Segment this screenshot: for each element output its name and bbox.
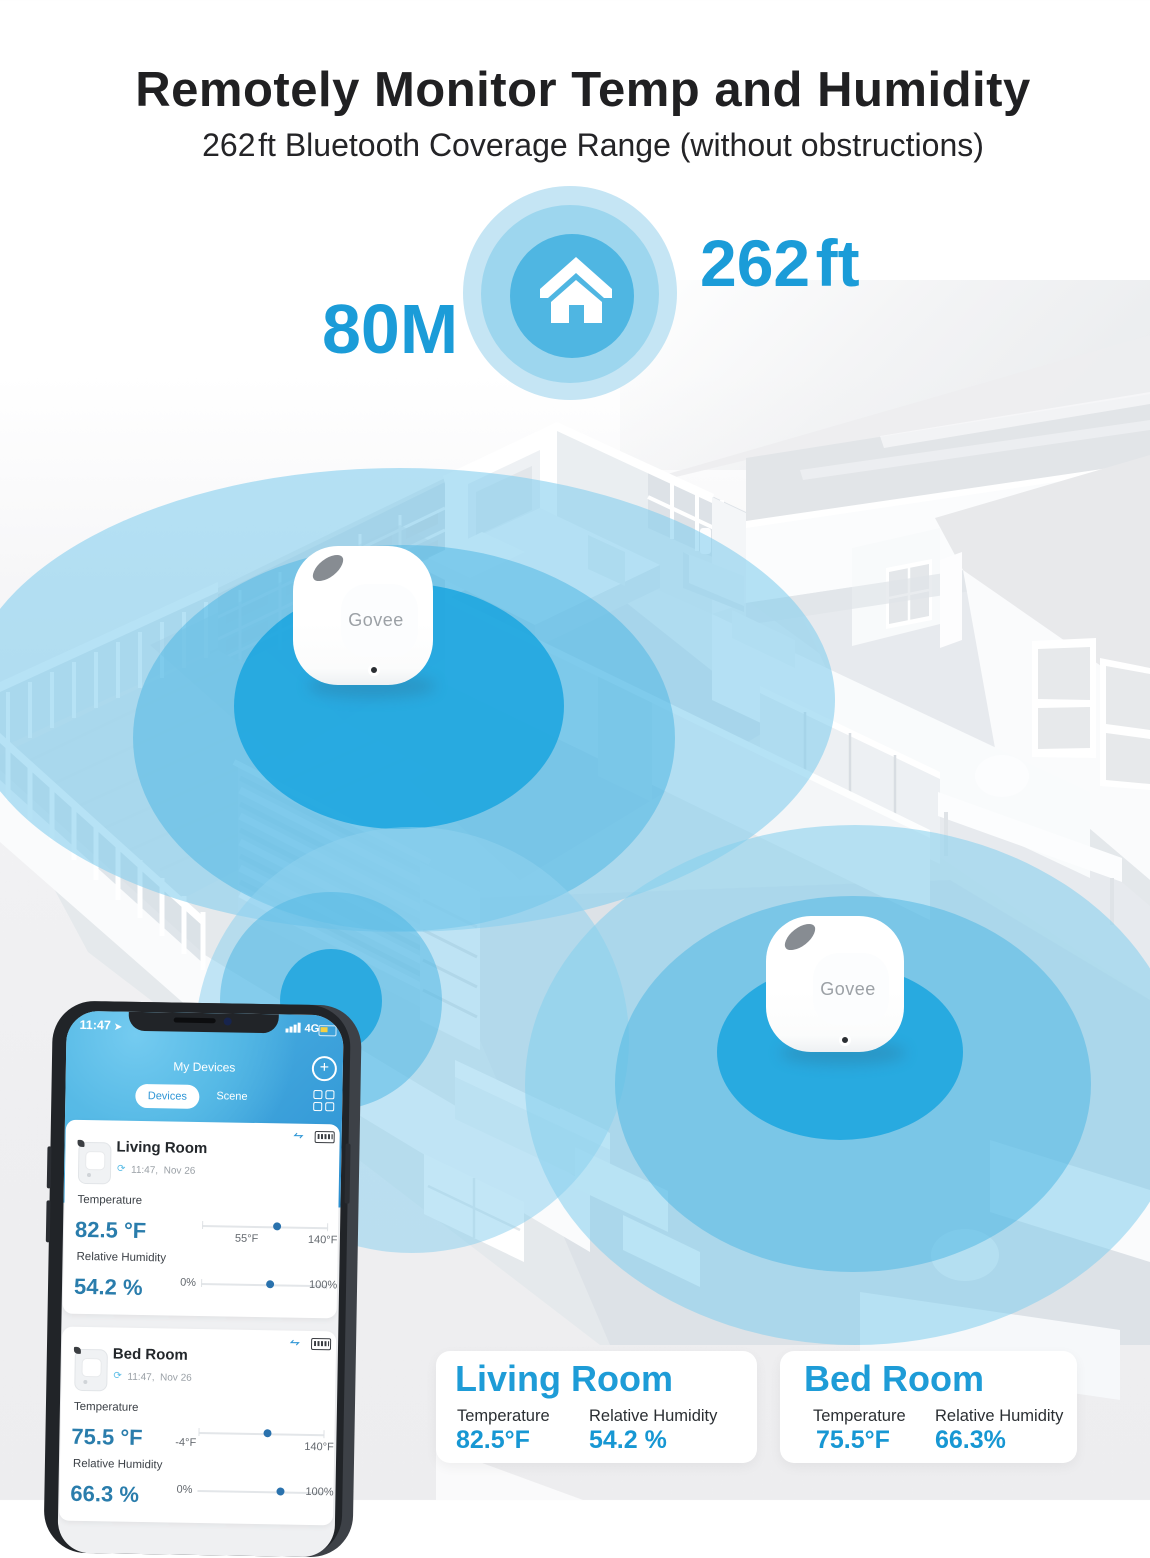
svg-text:Govee: Govee bbox=[820, 979, 876, 999]
svg-text:Govee: Govee bbox=[348, 610, 404, 630]
